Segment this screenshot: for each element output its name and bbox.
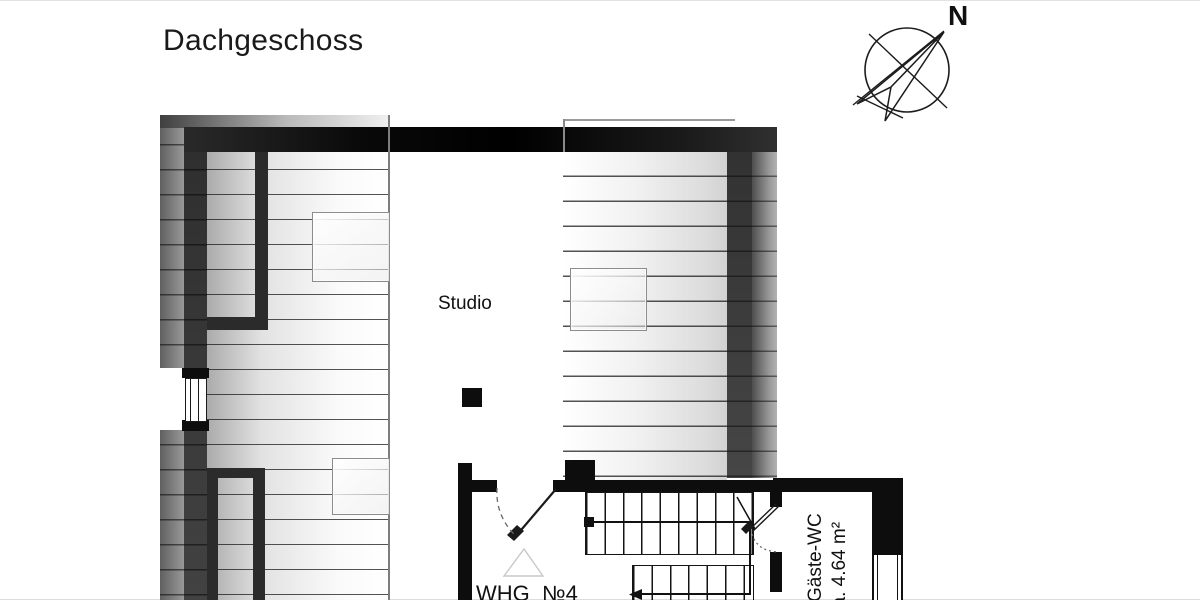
roof-hatch-lines-over-right-wall xyxy=(727,152,777,478)
roof-outline-top-right xyxy=(563,119,735,121)
compass-north-label: N xyxy=(948,0,968,32)
interior-partition-upper-right-bar xyxy=(255,152,268,330)
stairwell-wall-stub xyxy=(565,460,595,480)
staircase-upper-flight xyxy=(585,492,754,555)
stairwell-wall xyxy=(553,480,780,492)
wc-area-label: ca. 4.64 m² xyxy=(829,522,851,600)
skylight-window-1 xyxy=(312,212,390,282)
apartment-entry-wall xyxy=(458,463,472,600)
interior-partition-upper-bottom-bar xyxy=(207,317,268,330)
skylight-window-2 xyxy=(570,268,647,331)
guest-wc-window xyxy=(872,555,903,600)
plan-title: Dachgeschoss xyxy=(163,24,363,58)
page-border-top xyxy=(0,0,1200,1)
hatch-left-boundary-line xyxy=(388,115,390,600)
left-window-jamb-top xyxy=(182,368,209,378)
apartment-entry-door-swing xyxy=(497,488,556,541)
structural-column xyxy=(462,388,482,407)
skylight-window-3 xyxy=(332,458,390,515)
guest-wc-right-wall xyxy=(872,492,903,555)
wc-name-label: Gäste-WC xyxy=(805,513,827,600)
room-label-studio: Studio xyxy=(438,293,492,315)
apartment-label: WHG №4 xyxy=(476,581,578,600)
left-window-frame xyxy=(185,378,207,422)
staircase-lower-flight xyxy=(632,565,754,600)
apartment-entry-wall-stub xyxy=(472,480,497,492)
roof-hatch-lines-over-left-wall xyxy=(160,128,207,600)
north-arrow-icon xyxy=(853,28,949,121)
interior-partition-lower-right-bar xyxy=(253,468,265,600)
triangle-symbol xyxy=(504,549,543,576)
interior-partition-lower-left-bar xyxy=(207,478,218,600)
guest-wc-door-jamb-top xyxy=(770,492,782,507)
exterior-wall-top xyxy=(184,127,777,152)
floor-plan: Dachgeschoss xyxy=(0,0,1200,600)
guest-wc-door-jamb-bottom xyxy=(770,552,782,592)
guest-wc-top-wall xyxy=(773,478,903,492)
